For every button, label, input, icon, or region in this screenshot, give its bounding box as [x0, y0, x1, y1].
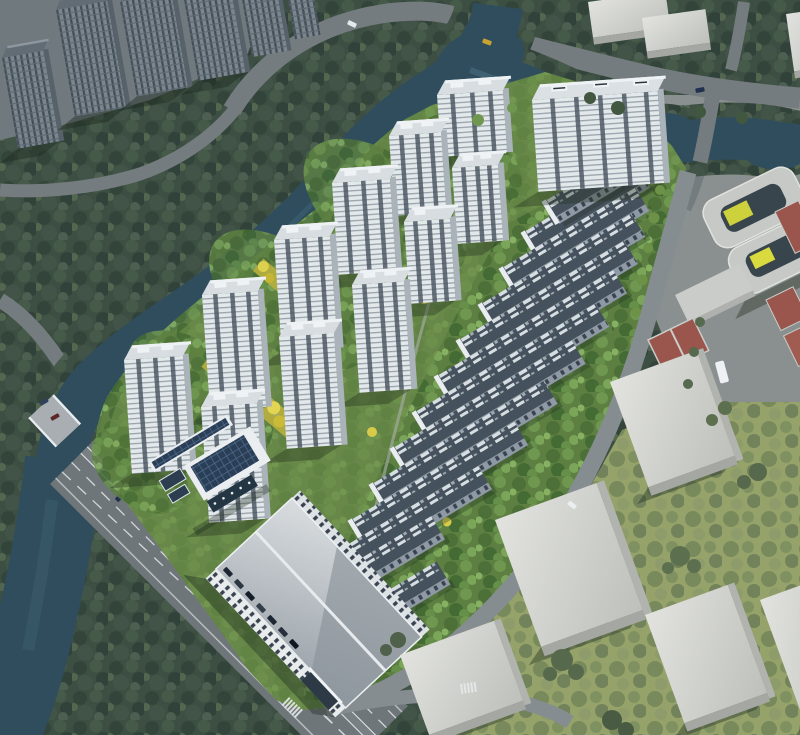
aerial-render-canvas [0, 0, 800, 735]
aerial-render: Bird's-eye architectural rendering of a … [0, 0, 800, 735]
